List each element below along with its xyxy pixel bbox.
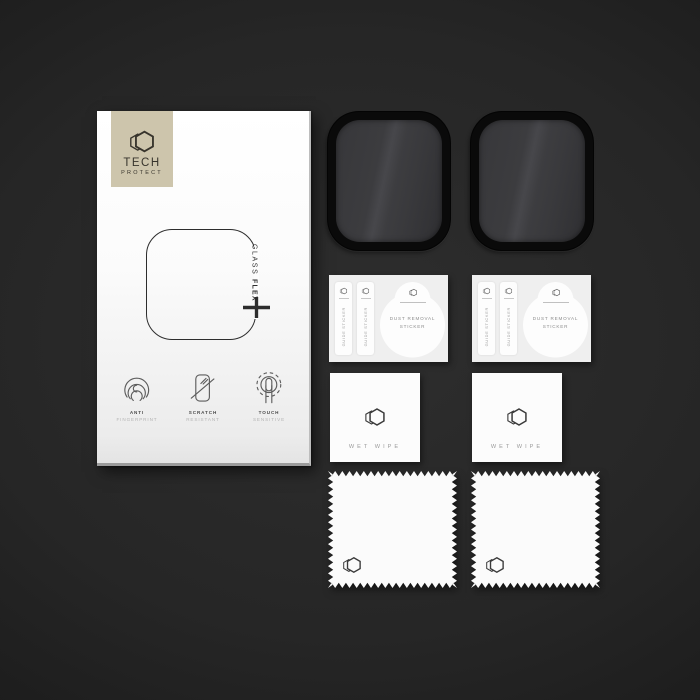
dust-removal-sticker: DUST REMOVAL STICKER [380, 282, 445, 358]
dust-removal-label: DUST REMOVAL STICKER [380, 315, 445, 331]
feature-label: SCRATCH [189, 410, 217, 415]
dust-removal-label: DUST REMOVAL STICKER [523, 315, 588, 331]
guide-sticker: GUIDE STICKER [478, 282, 495, 355]
plus-icon [242, 295, 271, 320]
screen-protector-2 [471, 112, 593, 250]
brand-badge: TECH PROTECT [111, 111, 173, 187]
guide-sticker-label: GUIDE STICKER [506, 307, 511, 346]
guide-sticker: GUIDE STICKER [335, 282, 352, 355]
product-photo-stage: TECH PROTECT GLASS FLEX ANTI FINGERPRINT [0, 0, 700, 700]
tech-protect-logo-icon [504, 287, 513, 295]
cloth-fabric [328, 471, 457, 588]
wet-wipe-2: WET WIPE [472, 373, 562, 462]
wet-wipe-label: WET WIPE [472, 444, 562, 450]
tech-protect-logo-icon [363, 406, 387, 428]
feature-label: ANTI [130, 410, 144, 415]
feature-row: ANTI FINGERPRINT SCRATCH RESISTANT [107, 371, 299, 422]
tech-protect-logo-icon [127, 128, 157, 155]
tech-protect-logo-icon [482, 287, 491, 295]
tech-protect-logo-icon [361, 287, 370, 295]
cleaning-cloth-2 [471, 471, 600, 588]
tech-protect-logo-icon [408, 288, 418, 297]
tech-protect-logo-icon [339, 287, 348, 295]
divider [400, 302, 426, 303]
cloth-fabric [471, 471, 600, 588]
watch-outline-graphic [146, 229, 256, 340]
feature-sublabel: RESISTANT [186, 417, 220, 422]
feature-touch-sensitive: TOUCH SENSITIVE [239, 371, 299, 422]
scratch-resistant-icon [189, 371, 216, 405]
feature-label: TOUCH [259, 410, 280, 415]
tech-protect-logo-icon [551, 288, 561, 297]
divider [339, 298, 349, 299]
retail-box: TECH PROTECT GLASS FLEX ANTI FINGERPRINT [97, 111, 311, 466]
wet-wipe-label: WET WIPE [330, 444, 420, 450]
feature-sublabel: SENSITIVE [253, 417, 285, 422]
guide-sticker-label: GUIDE STICKER [341, 307, 346, 346]
sticker-card-2: GUIDE STICKER GUIDE STICKER DUST REMOVAL… [472, 275, 591, 362]
sticker-card-1: GUIDE STICKER GUIDE STICKER DUST REMOVAL… [329, 275, 448, 362]
feature-anti-fingerprint: ANTI FINGERPRINT [107, 371, 167, 422]
divider [543, 302, 569, 303]
cleaning-cloth-1 [328, 471, 457, 588]
dust-removal-sticker: DUST REMOVAL STICKER [523, 282, 588, 358]
tech-protect-logo-icon [505, 406, 529, 428]
screen-protector-1 [328, 112, 450, 250]
divider [482, 298, 492, 299]
tech-protect-logo-icon [341, 555, 363, 575]
touch-sensitive-icon [253, 371, 285, 405]
feature-scratch-resistant: SCRATCH RESISTANT [173, 371, 233, 422]
brand-subname: PROTECT [121, 170, 163, 176]
guide-sticker-label: GUIDE STICKER [484, 307, 489, 346]
guide-sticker-label: GUIDE STICKER [363, 307, 368, 346]
tech-protect-logo-icon [484, 555, 506, 575]
guide-sticker: GUIDE STICKER [500, 282, 517, 355]
feature-sublabel: FINGERPRINT [116, 417, 157, 422]
divider [361, 298, 371, 299]
brand-name: TECH [123, 157, 160, 169]
product-name-glass: GLASS [251, 244, 258, 275]
divider [504, 298, 514, 299]
protector-glass [336, 120, 442, 242]
wet-wipe-1: WET WIPE [330, 373, 420, 462]
guide-sticker: GUIDE STICKER [357, 282, 374, 355]
fingerprint-icon [122, 371, 151, 405]
protector-glass [479, 120, 585, 242]
